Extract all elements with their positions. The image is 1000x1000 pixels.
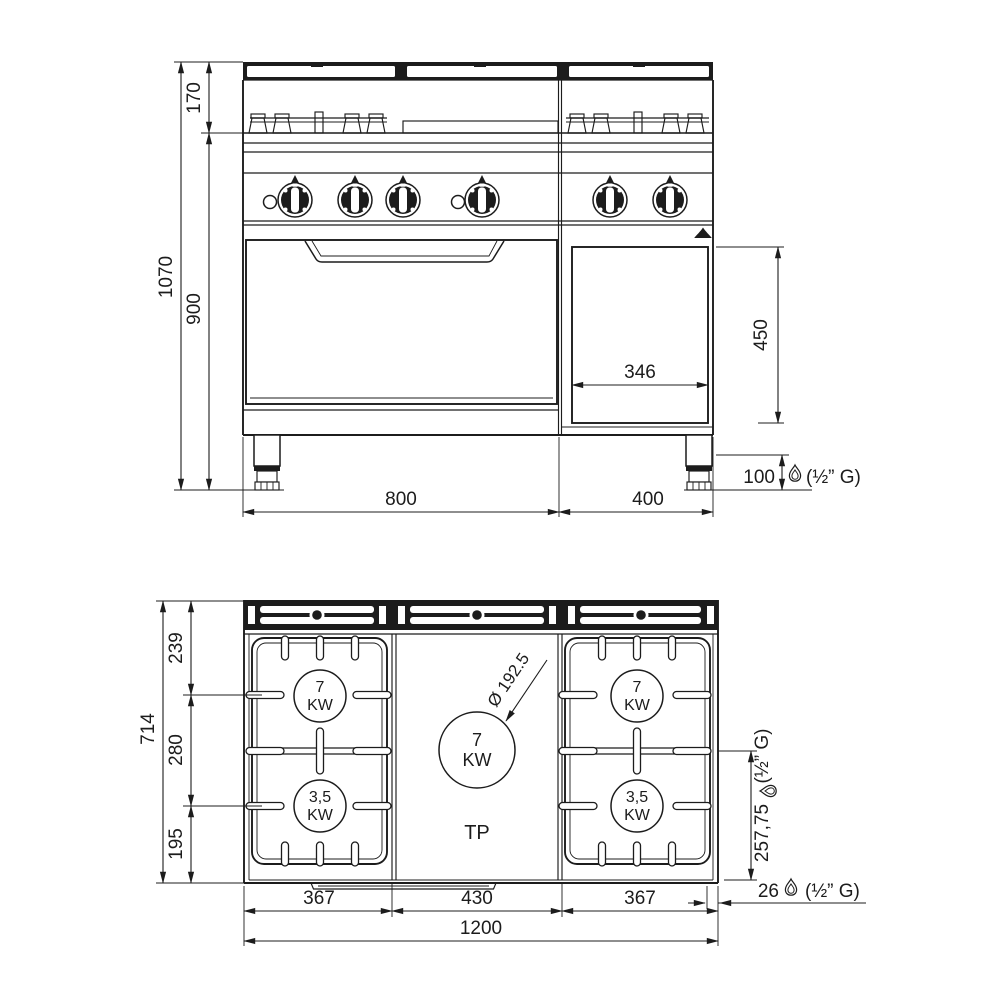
plate-label: TP [464,822,490,844]
control-knob-2 [338,175,372,217]
burner-right-front-power: 3,5 [626,789,648,806]
dim-burner-axis-spacing: 280 [166,734,187,766]
control-knob-1 [278,175,312,217]
burner-right-front-unit: KW [624,807,651,824]
dim-compartment-height: 450 [751,319,772,351]
dim-left-module-width: 800 [385,489,417,510]
gas-flame-icon [789,465,800,481]
pilot-light-2 [452,196,465,209]
brand-logo-icon [694,228,712,239]
oven-door [246,240,557,404]
right-grate-profile [566,112,709,133]
gas-note-vertical: (½” G) [752,729,773,784]
dim-total-depth: 714 [138,713,159,745]
burner-left-rear-unit: KW [307,697,334,714]
left-grate-profile [249,112,387,133]
dim-center-module-width: 430 [461,888,493,909]
rear-rail [244,600,718,630]
control-knob-3 [386,175,420,217]
pilot-light-1 [264,196,277,209]
dim-right-module-width-top: 367 [624,888,656,909]
control-panel [264,175,712,238]
burner-center-unit: KW [463,750,492,770]
dim-worktop-height: 900 [184,293,205,325]
dim-gas-from-right: 26 [758,881,779,902]
dim-burner-axis-to-front: 195 [166,828,187,860]
top-view: 7 KW 3,5 KW 7 KW 3,5 KW 7 KW Ø 192.5 TP [244,600,718,889]
gas-range-technical-drawing: 1070 900 170 800 400 346 450 100 (½” G) [0,0,1000,1000]
gas-flame-icon-vertical [760,785,776,796]
dim-total-width: 1200 [460,918,502,939]
burner-left-front-unit: KW [307,807,334,824]
dim-gas-from-front: 257,75 [752,804,773,862]
burner-left-front-power: 3,5 [309,789,331,806]
gas-note-bottom: (½” G) [805,881,860,902]
burner-right-rear-unit: KW [624,697,651,714]
gas-flame-icon-bottom [785,879,796,895]
control-knob-6 [653,175,687,217]
dim-backsplash-height: 170 [184,82,205,114]
burner-right-rear-power: 7 [633,679,642,696]
right-leg [686,435,712,490]
dim-compartment-width: 346 [624,362,656,383]
oven-door-handle [305,241,504,262]
dim-right-module-width: 400 [632,489,664,510]
dim-total-height: 1070 [156,256,177,298]
solid-top-profile [403,121,558,133]
dim-left-module-width-top: 367 [303,888,335,909]
gas-connection-note: (½” G) [806,467,861,488]
dim-rear-to-burner-axis: 239 [166,632,187,664]
left-leg [254,435,280,490]
control-knob-4 [465,175,499,217]
burner-center-power: 7 [472,730,482,750]
dim-foot-height: 100 [743,467,775,488]
backsplash-rail [243,62,713,80]
front-view [243,62,713,490]
burner-power-badges: 7 KW 3,5 KW 7 KW 3,5 KW 7 KW [294,670,663,832]
burner-left-rear-power: 7 [316,679,325,696]
technical-drawing-page: 1070 900 170 800 400 346 450 100 (½” G) [0,0,1000,1000]
base-compartment [562,247,713,427]
control-knob-5 [593,175,627,217]
plate-diameter-label: Ø 192.5 [484,650,534,711]
